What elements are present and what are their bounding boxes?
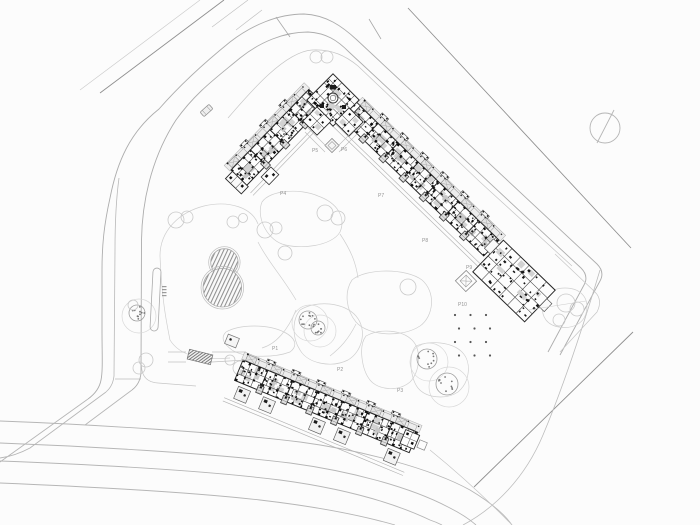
svg-text:P1: P1 [272,346,278,352]
svg-text:P4: P4 [280,191,286,197]
svg-text:P5: P5 [312,148,318,154]
svg-text:P2: P2 [337,367,343,373]
svg-text:P10: P10 [458,302,467,308]
svg-text:P7: P7 [378,193,384,199]
svg-text:P8: P8 [422,238,428,244]
svg-text:P6: P6 [341,147,347,153]
svg-text:P9: P9 [466,265,472,271]
svg-text:P3: P3 [397,388,403,394]
